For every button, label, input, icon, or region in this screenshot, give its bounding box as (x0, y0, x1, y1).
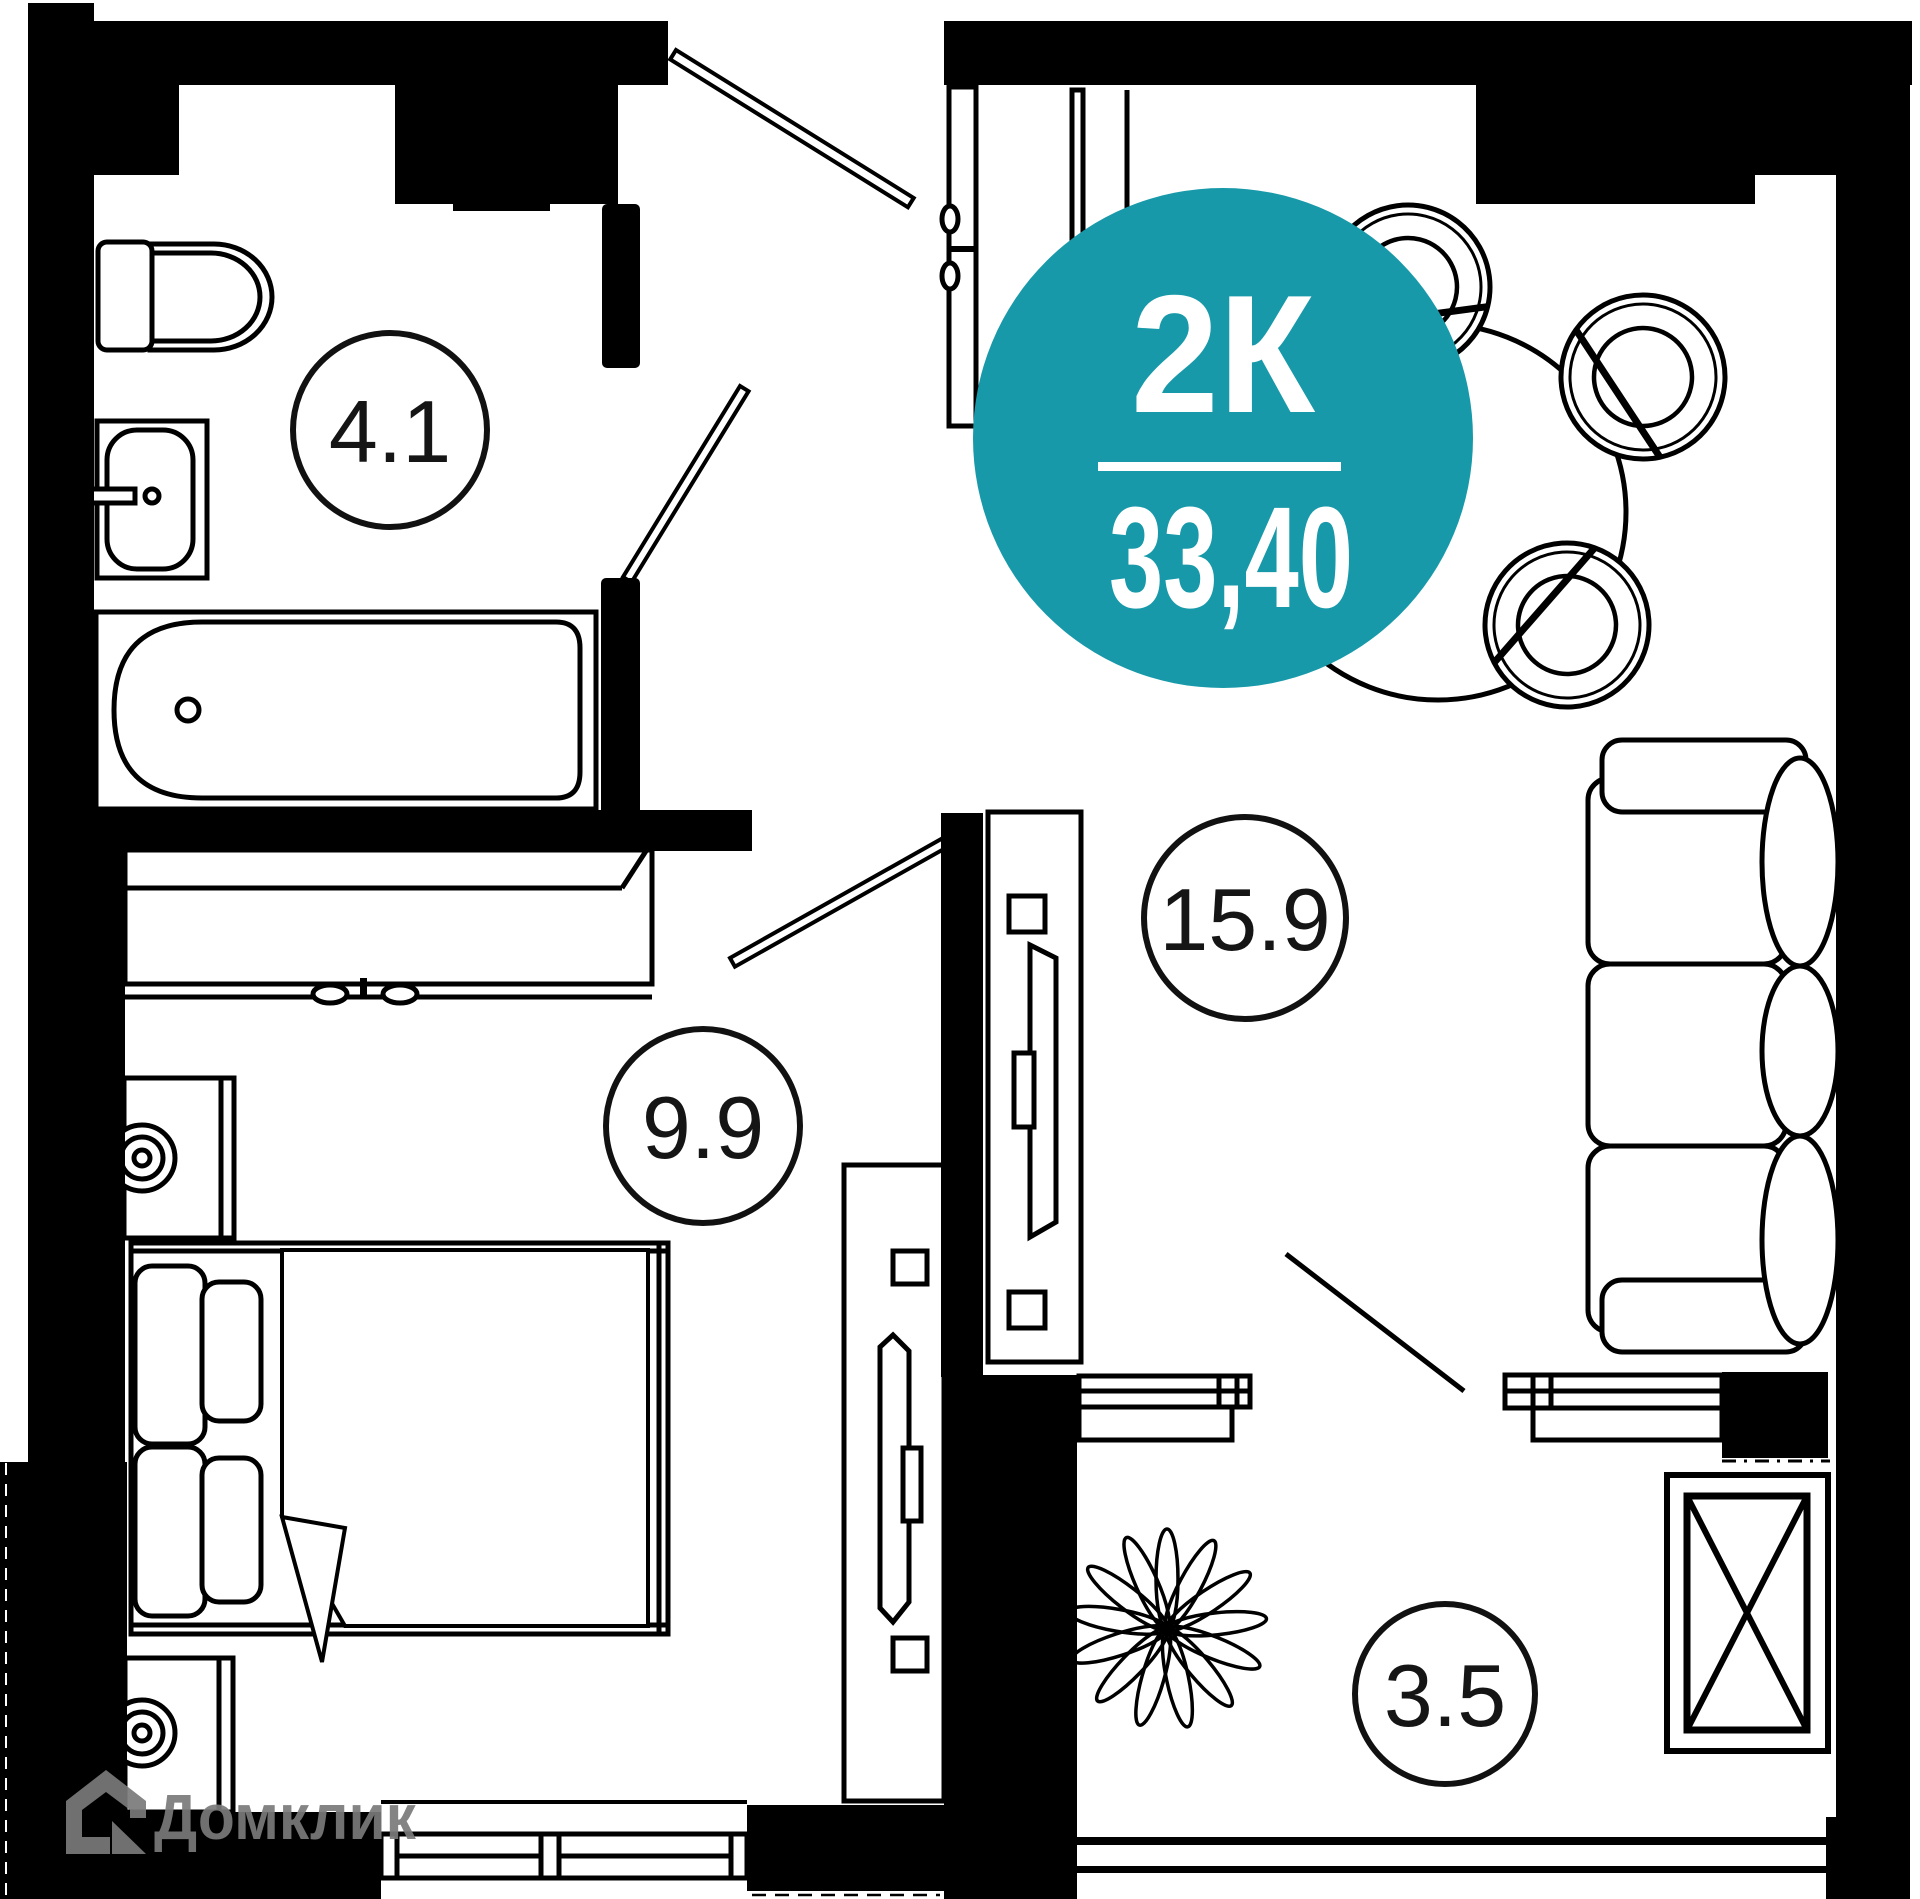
svg-text:4.1: 4.1 (329, 382, 451, 481)
svg-text:33,40: 33,40 (1109, 477, 1353, 638)
svg-text:Домклик: Домклик (154, 1781, 417, 1853)
svg-text:3.5: 3.5 (1384, 1646, 1506, 1745)
svg-text:15.9: 15.9 (1159, 870, 1330, 969)
svg-text:9.9: 9.9 (642, 1078, 764, 1177)
svg-text:2К: 2К (1131, 260, 1315, 448)
